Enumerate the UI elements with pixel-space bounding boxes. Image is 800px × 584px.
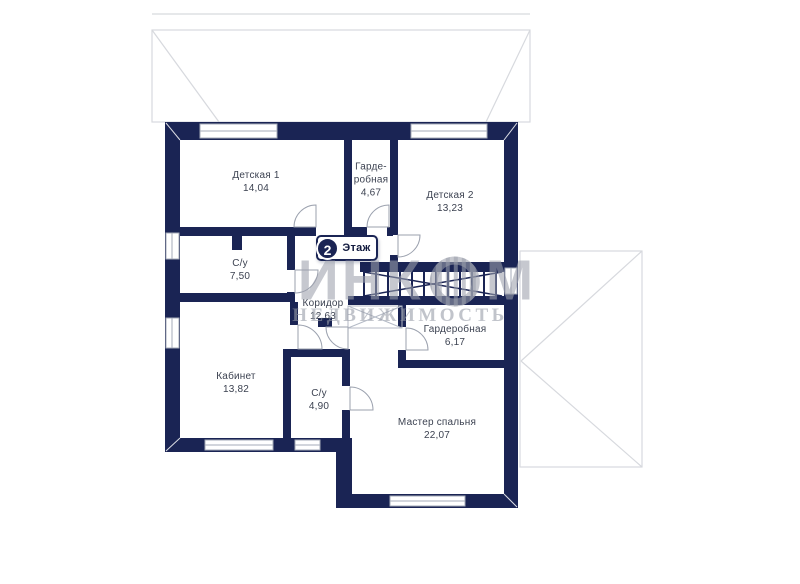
door-su-750 (295, 270, 318, 293)
floor-badge-label: Этаж (339, 242, 376, 254)
door-master-entry (326, 327, 348, 349)
roof-outlines (152, 14, 642, 467)
staircase (352, 272, 504, 296)
door-su-490 (350, 387, 373, 410)
stair-void-marker (348, 306, 402, 328)
door-detskaya-2 (398, 235, 420, 257)
door-kabinet (298, 325, 322, 349)
door-detskaya-1 (294, 205, 316, 227)
door-garderobnaya-2 (406, 328, 428, 350)
door-garderobnaya-1 (367, 205, 389, 227)
floor-badge: 2 Этаж (316, 235, 378, 261)
floor-plan-page: Детская 1 14,04 Гарде-робная 4,67 Детска… (0, 0, 800, 584)
floor-number-circle: 2 (316, 237, 339, 260)
floor-plan-drawing (0, 0, 800, 584)
